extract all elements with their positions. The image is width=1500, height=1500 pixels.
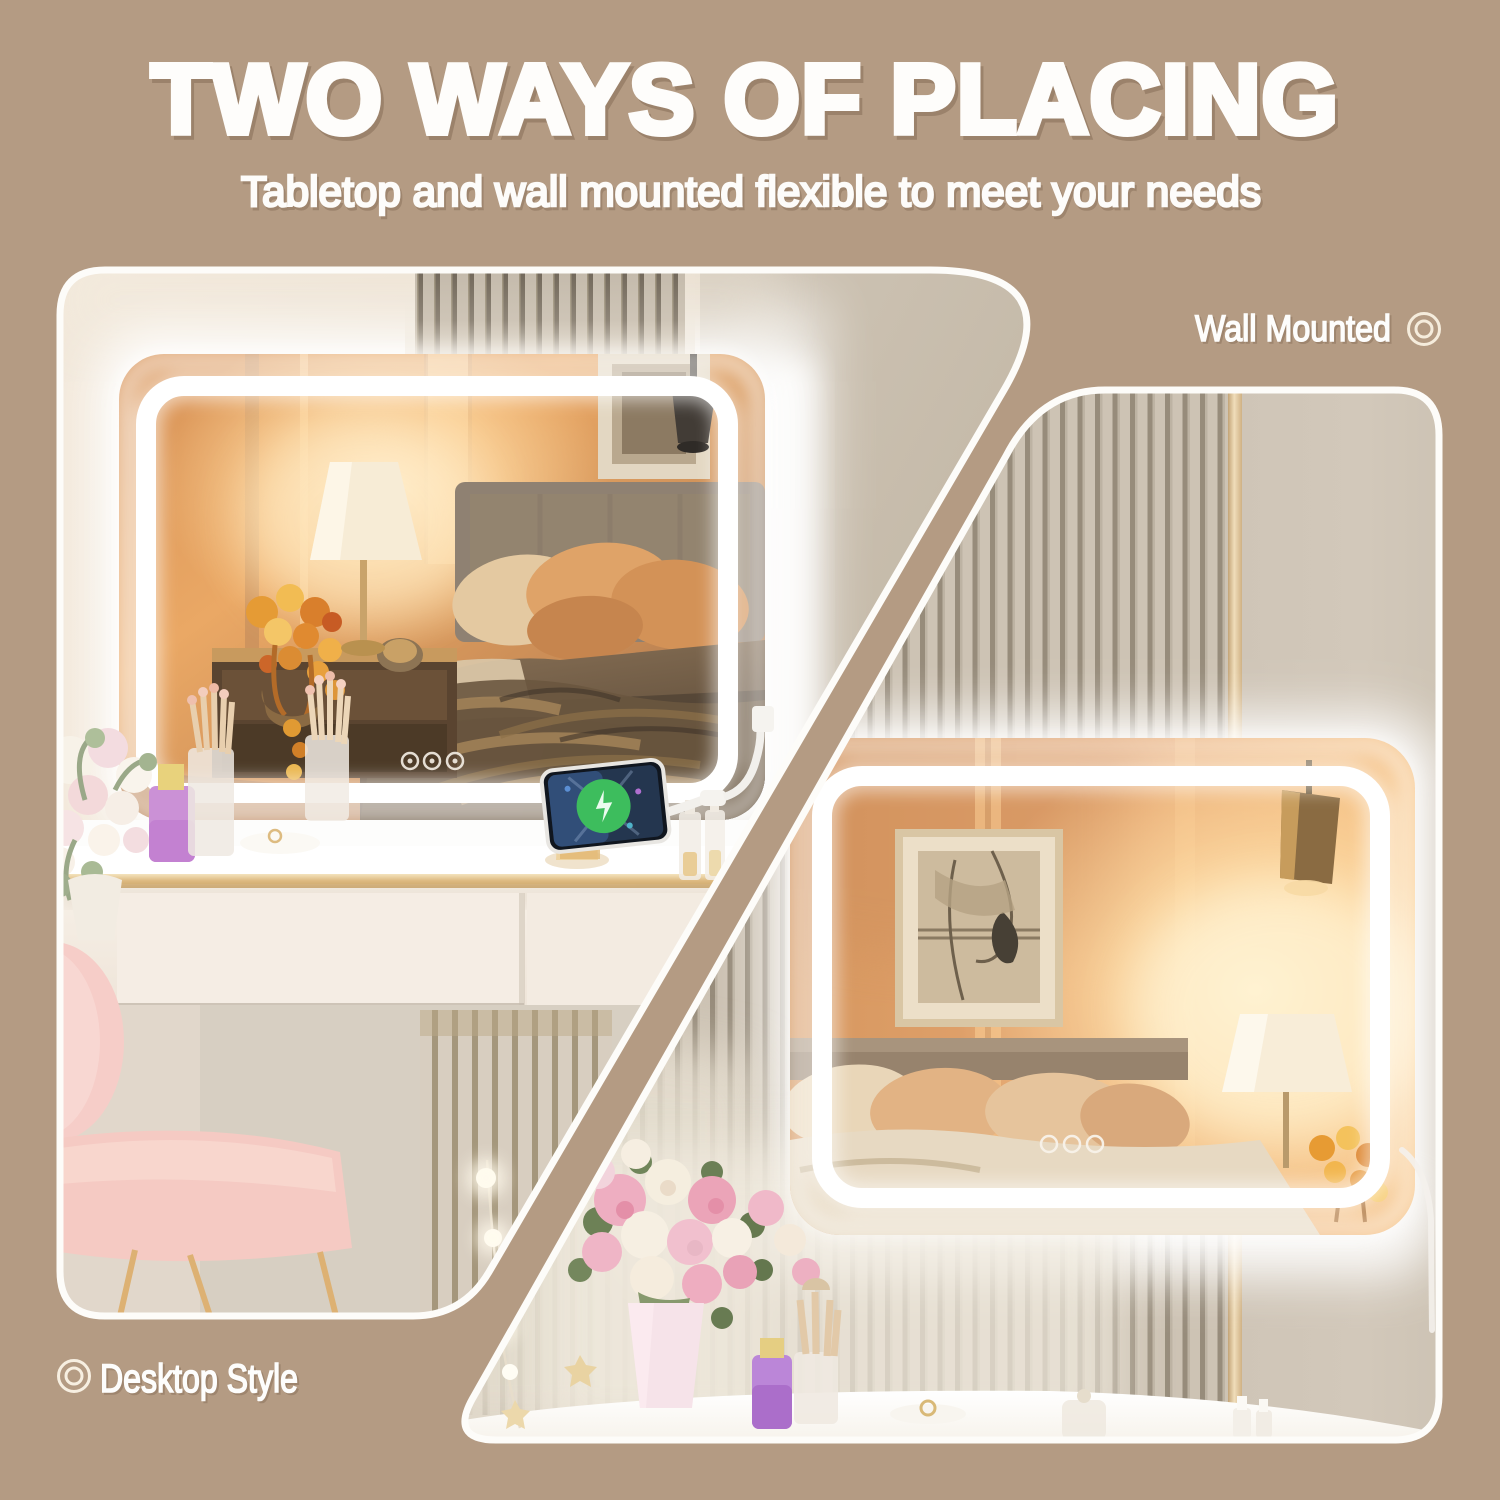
svg-text:TWO WAYS OF PLACING: TWO WAYS OF PLACING [151, 44, 1339, 154]
svg-text:Desktop Style: Desktop Style [100, 1357, 298, 1401]
svg-text:Tabletop and wall mounted flex: Tabletop and wall mounted flexible to me… [241, 168, 1261, 216]
svg-text:Wall Mounted: Wall Mounted [1195, 308, 1391, 349]
